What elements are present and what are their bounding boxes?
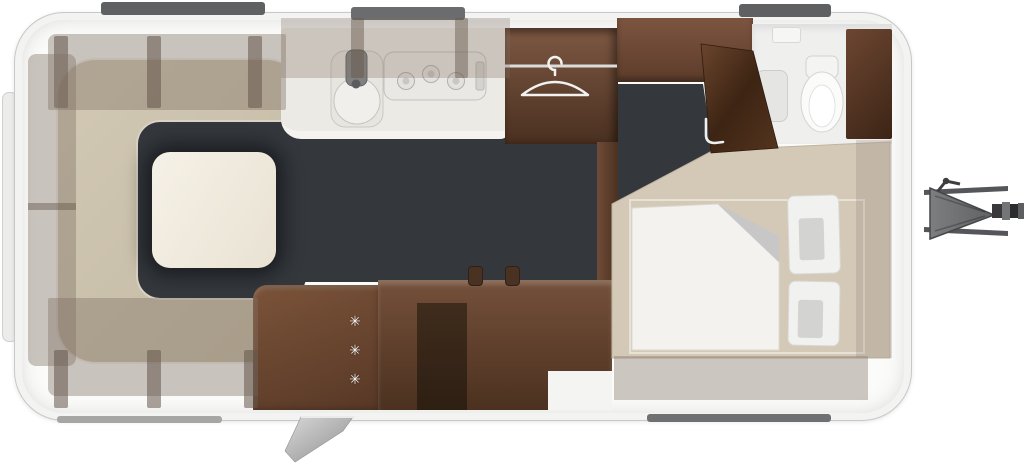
partition-wall <box>597 142 618 282</box>
locker-divider <box>54 350 68 408</box>
hitch-rail-bottom <box>924 227 1008 236</box>
shower-tray <box>756 70 788 122</box>
bathroom-front-wall <box>617 18 753 82</box>
entry-step <box>285 417 353 462</box>
bathroom-cabinet <box>846 29 892 139</box>
snowflake-icon: ✳ <box>349 315 361 329</box>
snowflake-icon: ✳ <box>349 344 361 358</box>
entry-floor <box>548 371 612 410</box>
hitch-coupler <box>992 202 1024 220</box>
sideboard-recess <box>417 303 467 410</box>
counter-handle <box>468 266 483 286</box>
window-bottom-bed <box>647 414 831 422</box>
window-top-bathroom <box>739 4 831 17</box>
caravan-floorplan: ✳ ✳ ✳ <box>0 0 1024 474</box>
hitch-frame <box>930 188 994 239</box>
locker-divider <box>248 36 262 108</box>
pillow <box>787 281 840 347</box>
locker-divider <box>147 36 161 108</box>
wardrobe <box>505 28 618 144</box>
overhead-lockers-bed-right <box>856 140 892 358</box>
locker-divider <box>351 18 364 78</box>
locker-divider <box>28 203 76 210</box>
fridge-snowflakes: ✳ ✳ ✳ <box>341 315 369 387</box>
counter-handle <box>505 266 520 286</box>
floor-corridor <box>286 136 600 282</box>
pillow <box>787 194 841 274</box>
hitch-frame-detail <box>935 196 985 231</box>
bathroom-shelf <box>772 27 801 43</box>
pillow-inner <box>798 300 824 338</box>
jockey-wheel-knob <box>943 178 949 184</box>
window-bottom-rear <box>57 416 222 423</box>
overhead-lockers-bed-bottom <box>614 356 868 400</box>
dinette-table <box>152 152 276 268</box>
snowflake-icon: ✳ <box>349 373 361 387</box>
pillow-inner <box>799 218 825 261</box>
locker-divider <box>455 18 468 78</box>
window-top-rear <box>101 2 265 15</box>
overhead-lockers-kitchen <box>281 18 510 78</box>
locker-divider <box>244 350 258 408</box>
jockey-wheel-crank <box>938 181 960 191</box>
locker-divider <box>147 350 161 408</box>
hitch-rail-top <box>924 186 1008 195</box>
